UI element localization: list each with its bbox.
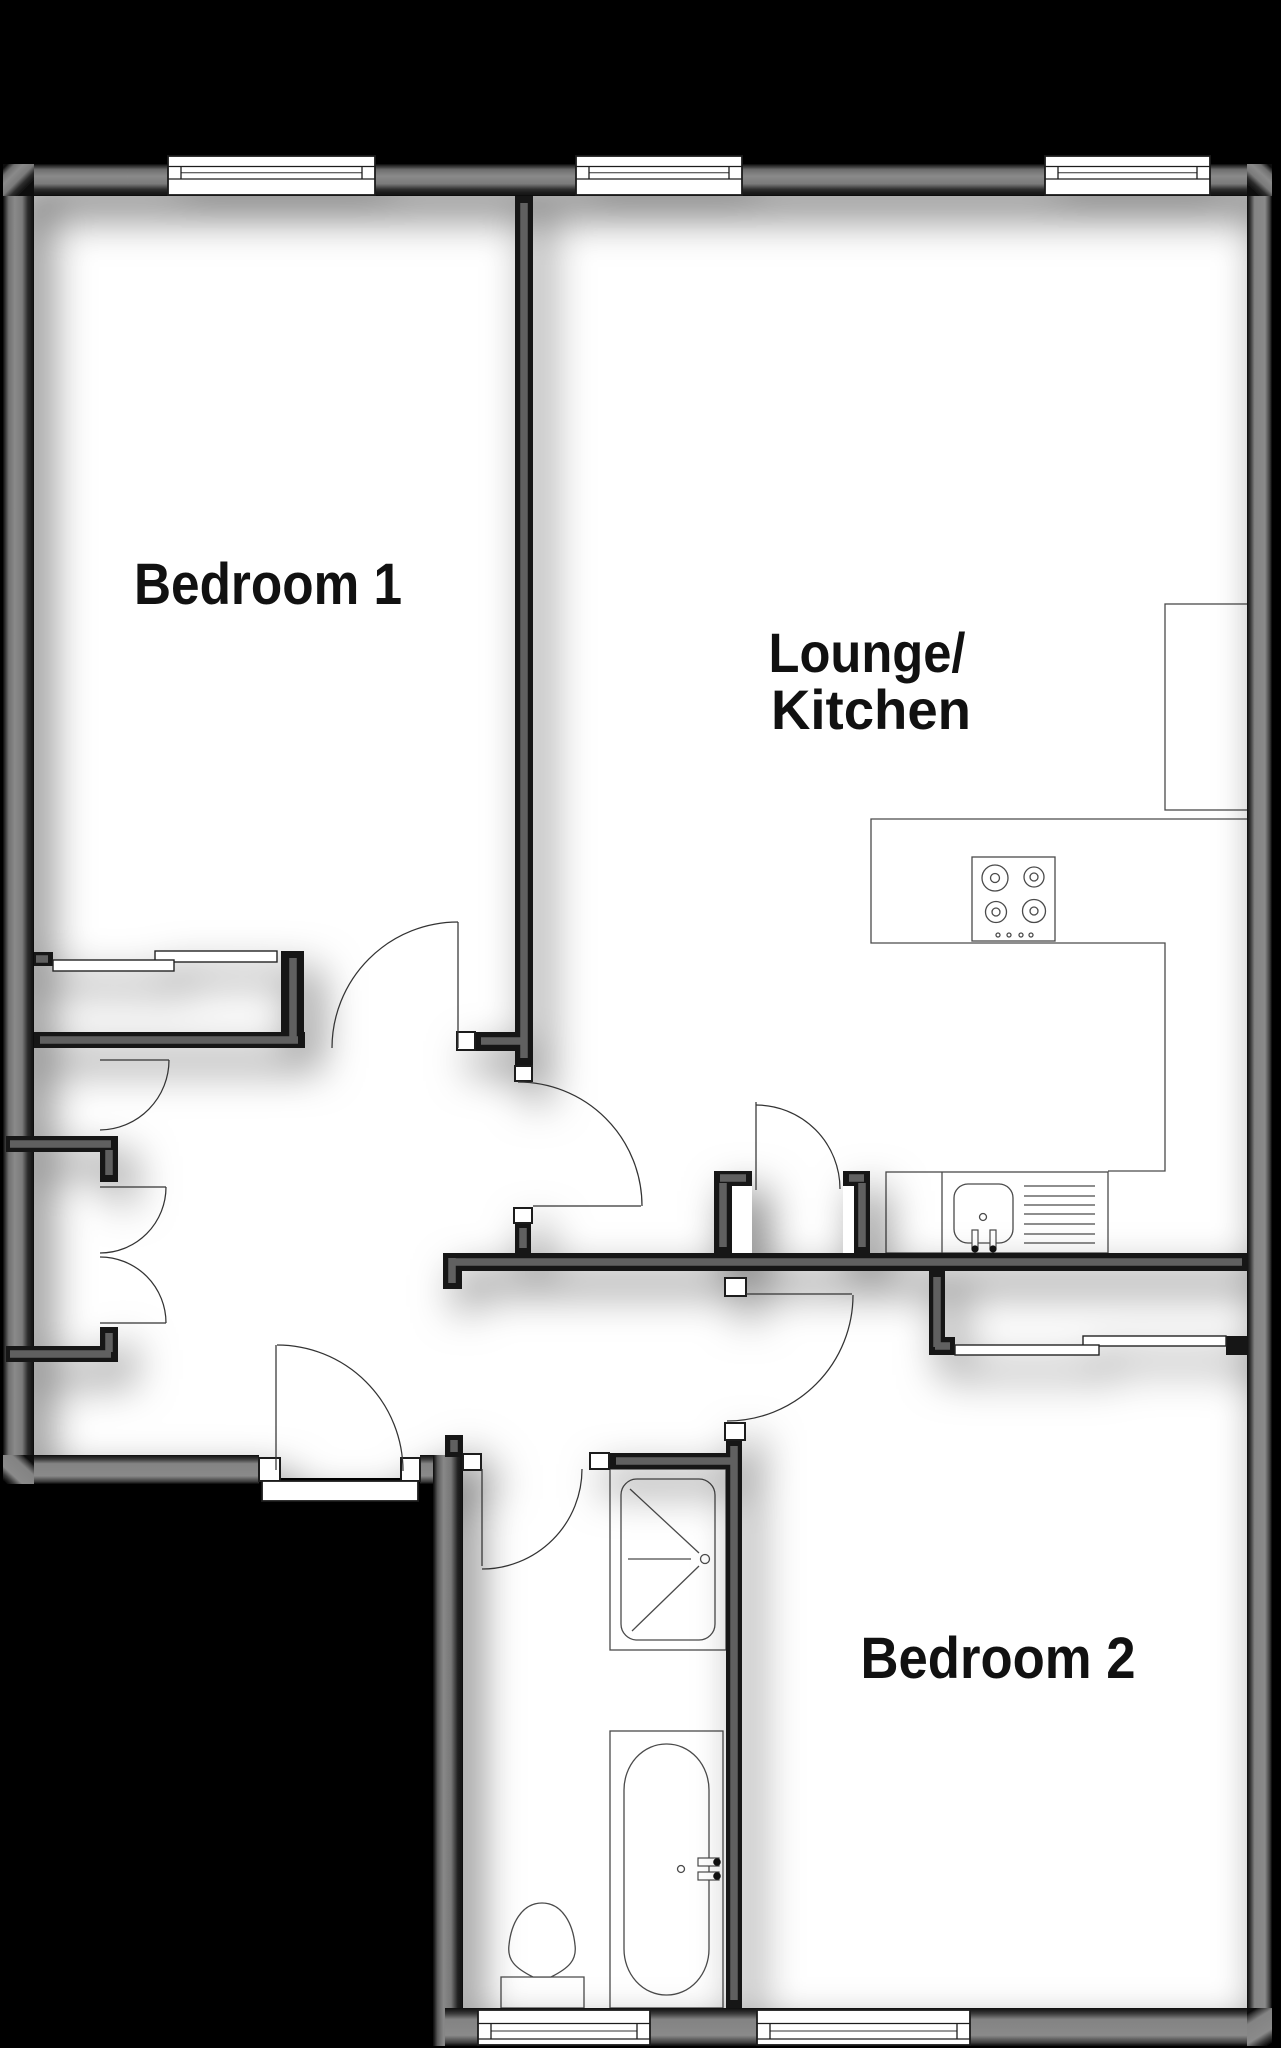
svg-text:Bedroom 2: Bedroom 2	[861, 1626, 1136, 1691]
svg-text:Lounge/: Lounge/	[769, 621, 966, 684]
svg-text:Bedroom 1: Bedroom 1	[134, 552, 402, 617]
svg-text:Kitchen: Kitchen	[771, 678, 971, 741]
